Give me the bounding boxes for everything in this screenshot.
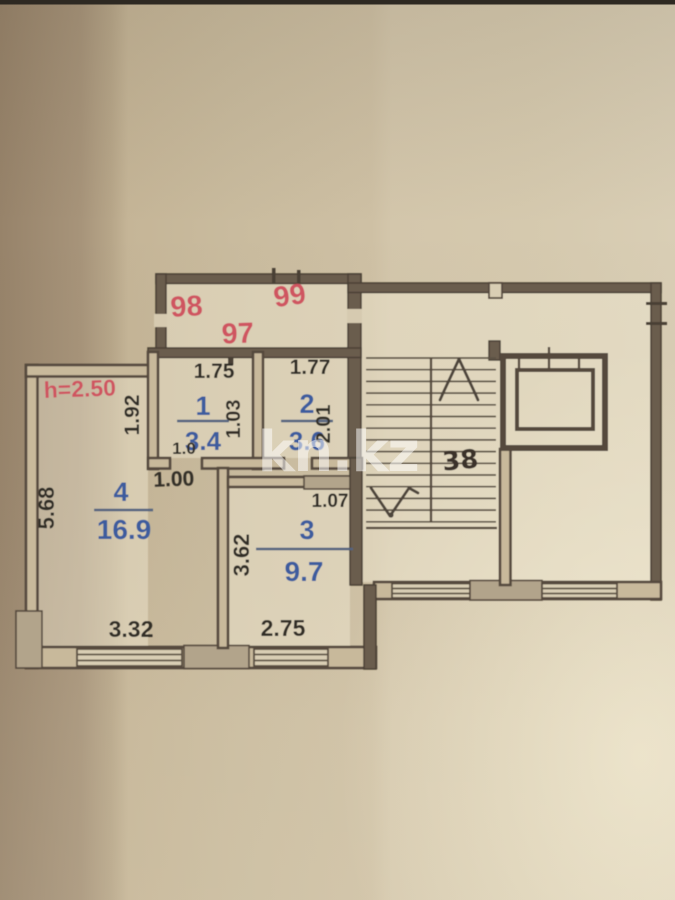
window-hatch [542, 584, 617, 599]
unit-97-label: 97 [221, 317, 254, 350]
room3-left-wall [218, 468, 228, 648]
unit-98-label: 98 [170, 290, 204, 324]
floorplan-canvas: 98 99 97 h=2.50 1 3.4 2 3.6 3 9.7 4 16.9… [0, 0, 675, 900]
room4-area: 16.9 [97, 514, 152, 545]
stairwell-top-wall [348, 283, 661, 293]
floorplan-photo: 98 99 97 h=2.50 1 3.4 2 3.6 3 9.7 4 16.9… [0, 0, 675, 900]
photo-top-edge [0, 0, 675, 5]
wall-opening [347, 309, 362, 323]
room1-left-wall [148, 352, 158, 469]
arrow-apex-dot [388, 512, 393, 517]
wall-tick [646, 302, 667, 305]
dim-room3-width: 2.75 [261, 615, 306, 641]
room3-area: 9.7 [285, 556, 324, 587]
room4-number: 4 [113, 477, 128, 507]
balcony-top-wall [156, 274, 361, 284]
dim-room4-width: 3.32 [109, 616, 154, 642]
wall-opening [154, 314, 167, 327]
dim-room1-depth: 1.03 [223, 400, 245, 439]
dim-room3-depth: 3.62 [229, 534, 254, 577]
dim-room1-door: 1.0 [172, 439, 196, 458]
dim-room2-width: 1.77 [290, 356, 331, 379]
corner-pier [16, 611, 42, 668]
window-hatch [254, 649, 328, 666]
window-hatch [77, 649, 182, 666]
dim-hall-door: 1.00 [153, 467, 195, 491]
window-hatch [392, 584, 470, 599]
kn-kz-watermark: kn.kz [258, 420, 419, 485]
dim-room1-width: 1.75 [194, 360, 235, 383]
stairwell-right-wall [651, 283, 661, 600]
room1-number: 1 [195, 391, 210, 421]
ceiling-height-label: h=2.50 [43, 374, 116, 403]
room3-number: 3 [299, 515, 314, 545]
unit-99-label: 99 [272, 278, 308, 314]
corner-connector-wall [364, 585, 376, 669]
wall-tick [646, 322, 667, 325]
wall-notch [489, 283, 502, 298]
dim-room4-upper-depth: 1.92 [121, 395, 144, 436]
rooms-bottom-wall [148, 458, 170, 469]
balcony-door-block [184, 646, 249, 669]
wall-tick [272, 268, 276, 283]
stair-flight-number: 38 [441, 445, 480, 478]
landing-wall [500, 449, 511, 585]
dim-room3-door: 1.07 [312, 491, 349, 512]
dim-room4-depth: 5.68 [34, 487, 59, 530]
